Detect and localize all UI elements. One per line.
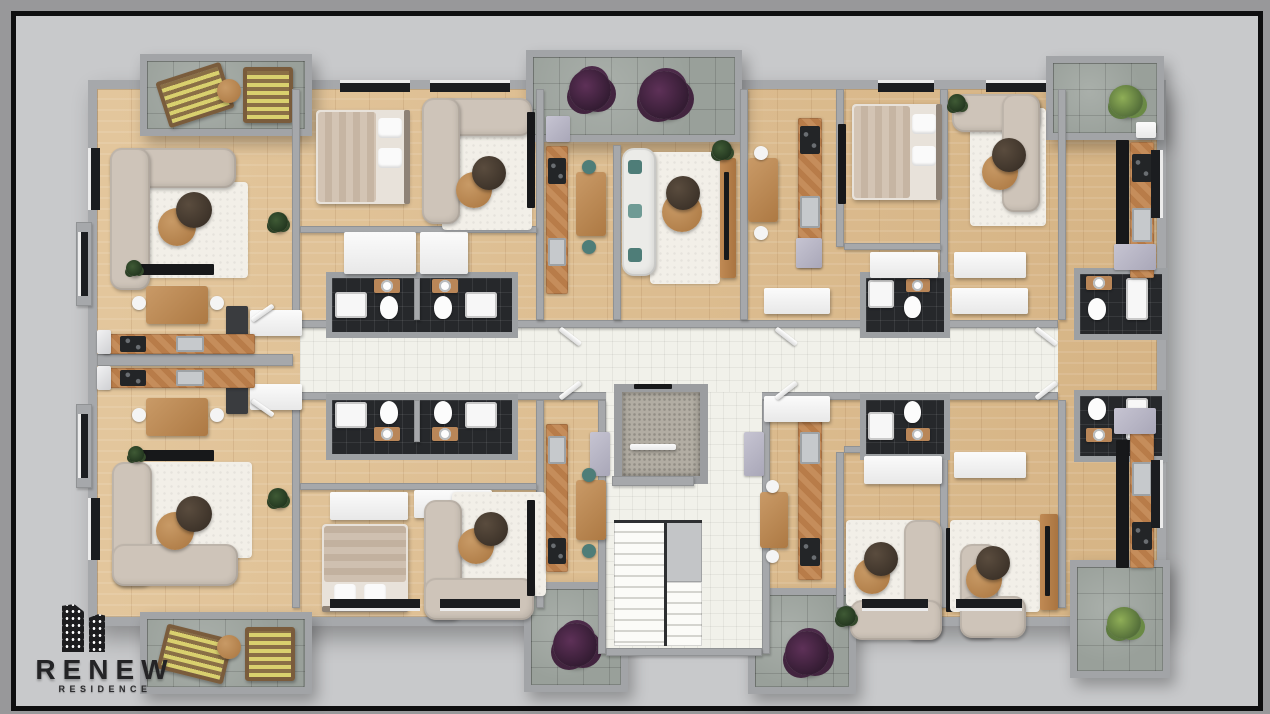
chair [754,226,768,240]
bay-window-left-upper [76,222,92,306]
bathroom-bottom-a [326,394,518,460]
plant-purple-icon [639,71,689,119]
pillow [628,160,642,174]
sofa [622,148,656,276]
window [1151,150,1163,218]
plant-icon [712,140,732,160]
tv-panel [1045,526,1050,596]
stair-flight [614,522,666,646]
toilet [904,296,921,318]
wardrobe [330,492,408,520]
chair [582,160,596,174]
window [78,414,88,478]
chair [132,296,146,310]
hall-cabinet [764,288,830,314]
wardrobe [864,456,942,484]
fridge [796,238,822,268]
chair [132,408,146,422]
shower [868,412,894,440]
pillow [912,146,936,166]
wall [536,89,544,320]
balcony-table [217,79,241,103]
balcony-top-left [140,54,312,136]
dining-table [576,480,606,540]
stair-landing [666,522,702,582]
wardrobe [954,452,1026,478]
fridge [546,116,570,142]
stove [120,370,146,386]
wall [1058,89,1066,320]
kitchen-tall-cabinets [1116,440,1129,568]
pillow [378,118,402,138]
window [440,599,520,611]
tv-panel [724,172,729,260]
stove [548,538,566,564]
elevator-lobby-wall [612,476,694,486]
core-wall-bottom [606,648,762,656]
fridge [744,432,764,476]
sink-basin [439,428,451,440]
coffee-table [666,176,700,210]
wall [1058,400,1066,608]
sink-basin [1093,277,1105,289]
stair-railing [614,520,702,523]
plant-green-icon [1109,85,1143,117]
wall [292,89,300,320]
sink-basin [912,280,923,291]
sofa [112,544,238,586]
tower-right [89,614,105,652]
plant-green-icon [1107,607,1141,639]
pillow [912,114,936,134]
balcony-table [217,635,241,659]
elevator [614,384,708,484]
vanity [432,427,458,441]
vanity [1086,428,1112,442]
plant-icon [126,260,142,276]
wall [414,400,420,442]
wardrobe [420,232,468,274]
wall [300,483,537,490]
window [986,80,1046,92]
plant-purple-icon [569,69,611,111]
bay-window-left-lower [76,404,92,488]
chair [582,544,596,558]
coffee-table [864,542,898,576]
stove [1132,522,1152,550]
buildings-icon [62,600,110,652]
fridge [97,366,111,390]
wall [414,278,420,320]
toilet [380,401,398,424]
shower [465,402,497,428]
coffee-table [976,546,1010,580]
plant-icon [128,446,144,462]
window [340,80,410,92]
chair [582,240,596,254]
lounger [243,67,293,123]
dining-table [146,398,208,436]
vanity [1086,276,1112,290]
hall-cabinet [764,396,830,422]
plant-icon [268,212,288,232]
dining-table [760,492,788,548]
bed [316,110,408,204]
sink-basin [912,429,923,440]
bed-blanket [324,526,406,582]
toilet [1088,398,1106,420]
kitchen-sink [800,432,820,464]
vanity [374,427,400,441]
toilet [380,296,398,319]
floor-plan-render: RENEW RESIDENCE [0,0,1270,714]
vanity [906,279,930,292]
headboard [936,104,942,200]
fridge [97,330,111,354]
shower [868,280,894,308]
fridge [1114,244,1156,270]
window [88,148,100,210]
balcony-bottom-right [1070,560,1170,678]
dining-table [576,172,606,236]
wall [740,89,748,320]
staircase [612,520,704,648]
chair [582,468,596,482]
wardrobe [954,252,1026,278]
tv-console [720,158,736,278]
kitchen-sink [1132,208,1152,242]
pillow [378,148,402,168]
tv-console [130,264,214,275]
bed-blanket [318,112,376,202]
wall-kitchen-spine [97,354,293,366]
window [1151,460,1163,528]
range-hood [1136,122,1156,138]
toilet [434,296,452,319]
chair [754,146,768,160]
coffee-table [992,138,1026,172]
tv-panel [838,124,846,204]
elevator-bench [630,444,676,450]
stove [548,158,566,184]
window [78,232,88,296]
sofa [422,98,460,224]
kitchen-sink [800,196,820,228]
chair [210,408,224,422]
window [878,80,934,92]
window [330,599,420,611]
stove [800,126,820,154]
chair [766,550,779,563]
logo-name: RENEW [30,654,180,686]
wardrobe [870,252,938,278]
toilet [1088,298,1106,320]
pillow [628,248,642,262]
coffee-table [472,156,506,190]
plant-purple-icon [553,623,597,667]
coffee-table [474,512,508,546]
plant-purple-icon [785,631,829,675]
window [862,599,928,611]
sink-basin [381,428,393,440]
stair-flight [666,582,702,646]
window [88,498,100,560]
plant-icon [268,488,288,508]
wall [613,145,621,320]
bed [852,104,940,200]
bathroom-top-c [1074,268,1168,340]
wall [836,452,844,608]
bathroom-top-a [326,272,518,338]
shower [1126,278,1148,320]
shower [335,292,367,318]
bed-blanket [854,106,910,198]
wall [844,243,941,250]
vanity [906,428,930,441]
tv-console [1040,514,1058,610]
window [430,80,510,92]
logo-tagline: RESIDENCE [30,684,180,694]
shower [465,292,497,318]
stair-railing [664,522,667,646]
kitchen-sink [548,436,566,464]
kitchen-sink [176,370,204,386]
bathroom-bottom-b [860,394,950,460]
lounger [245,627,295,681]
kitchen-sink [1132,462,1152,496]
window [956,599,1022,611]
stove [120,336,146,352]
dining-table [748,158,778,222]
elevator-door [634,384,672,389]
plant-icon [948,94,966,112]
sink-basin [439,280,451,292]
sink-basin [1093,429,1105,441]
tv-panel [527,112,535,208]
dining-table [146,286,208,324]
kitchen-sink [548,238,566,266]
tower-left [62,604,84,652]
pillow [628,204,642,218]
toilet [904,401,921,423]
vanity [374,279,400,293]
toilet [434,401,452,424]
fridge [1114,408,1156,434]
bathroom-top-b [860,272,950,338]
coffee-table [176,496,212,532]
chair [766,480,779,493]
headboard [404,110,410,204]
wall [292,400,300,608]
shower [335,402,367,428]
wardrobe [344,232,416,274]
sink-basin [381,280,393,292]
logo: RENEW RESIDENCE [30,592,180,704]
stove [1132,154,1152,182]
plant-icon [836,606,856,626]
kitchen-sink [176,336,204,352]
stove [800,538,820,566]
coffee-table [176,192,212,228]
hall-cabinet [952,288,1028,314]
vanity [432,279,458,293]
tv-panel [527,500,535,596]
chair [210,296,224,310]
